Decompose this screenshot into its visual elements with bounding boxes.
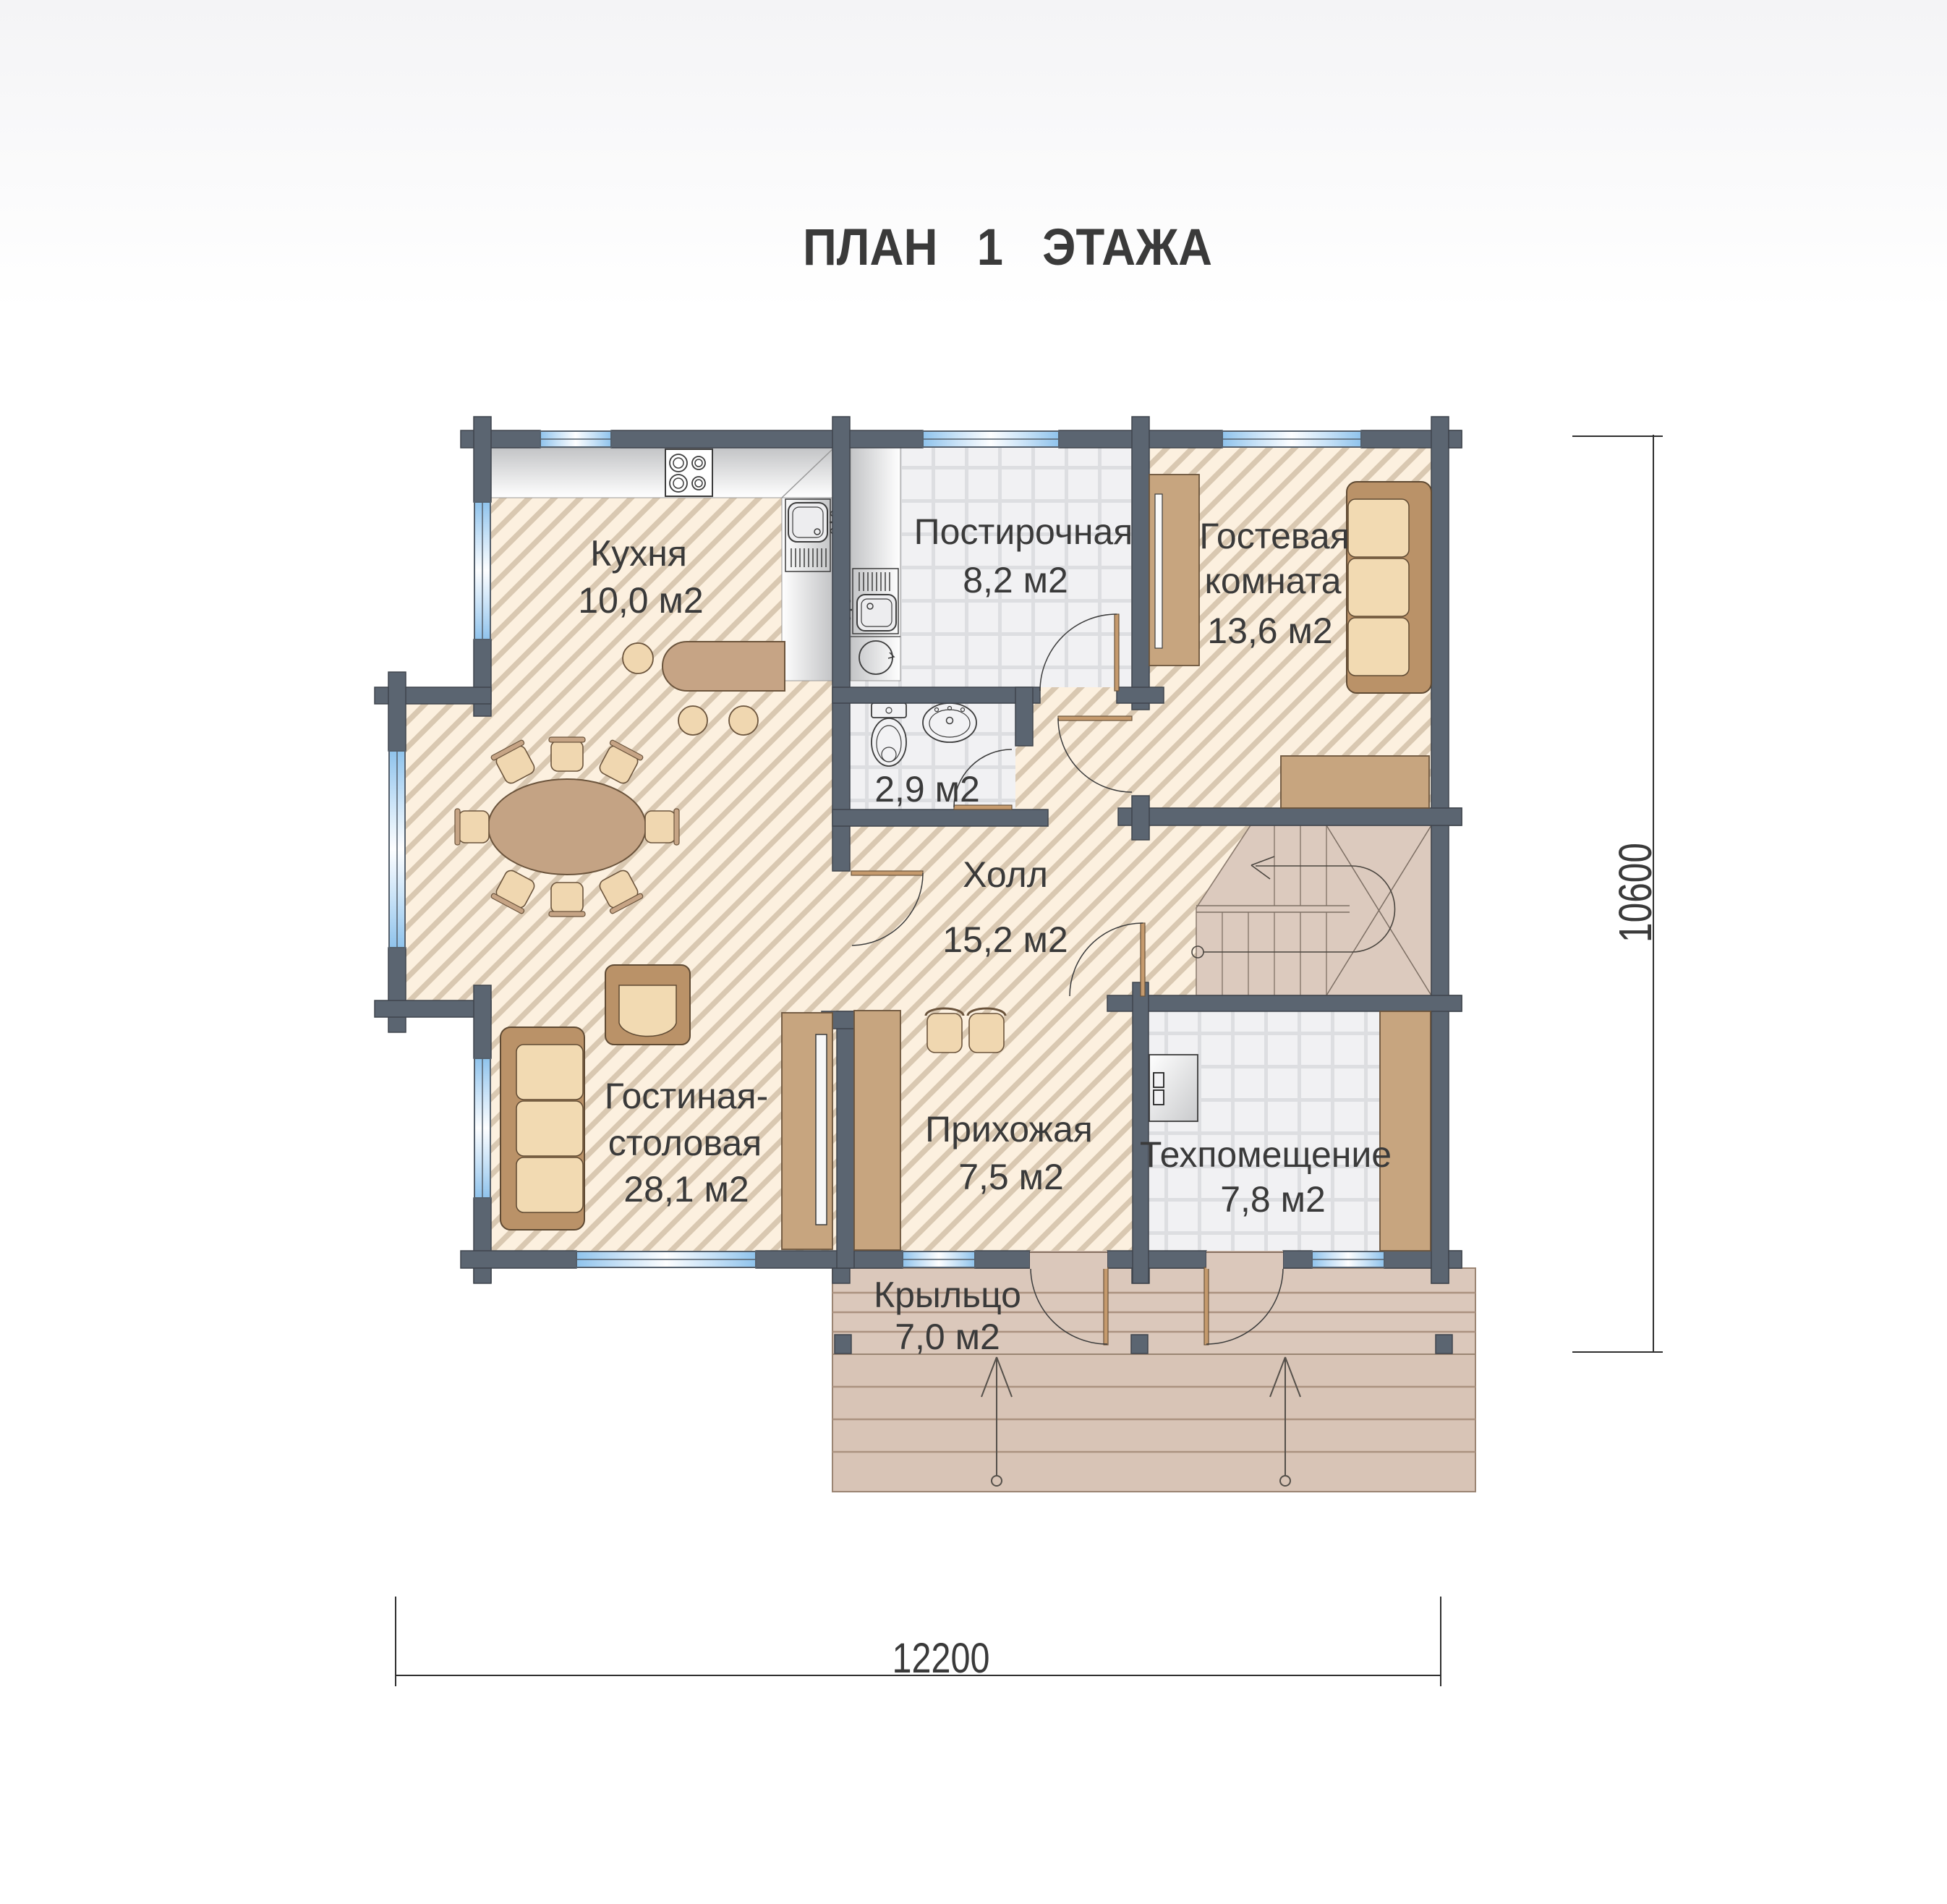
svg-text:10600: 10600 xyxy=(1609,843,1661,943)
svg-text:7,5 м2: 7,5 м2 xyxy=(958,1157,1064,1197)
svg-text:столовая: столовая xyxy=(608,1123,762,1163)
svg-text:Холл: Холл xyxy=(963,854,1048,895)
svg-text:7,8 м2: 7,8 м2 xyxy=(1220,1179,1326,1220)
svg-text:28,1 м2: 28,1 м2 xyxy=(623,1169,749,1210)
svg-text:Техпомещение: Техпомещение xyxy=(1140,1134,1392,1175)
svg-text:10,0 м2: 10,0 м2 xyxy=(578,580,703,621)
svg-text:13,6 м2: 13,6 м2 xyxy=(1207,611,1332,651)
svg-text:15,2 м2: 15,2 м2 xyxy=(942,919,1068,960)
svg-text:2,9 м2: 2,9 м2 xyxy=(874,769,980,809)
svg-text:комната: комната xyxy=(1204,561,1341,601)
svg-text:Гостевая: Гостевая xyxy=(1199,516,1350,556)
svg-text:Кухня: Кухня xyxy=(590,533,687,574)
svg-text:Крыльцо: Крыльцо xyxy=(874,1275,1021,1315)
svg-text:Гостиная-: Гостиная- xyxy=(605,1076,769,1116)
svg-text:12200: 12200 xyxy=(892,1635,990,1682)
svg-text:ПЛАН 1 ЭТАЖА: ПЛАН 1 ЭТАЖА xyxy=(803,219,1212,276)
svg-text:7,0 м2: 7,0 м2 xyxy=(895,1317,1000,1357)
svg-text:Прихожая: Прихожая xyxy=(925,1109,1093,1149)
svg-text:Постирочная: Постирочная xyxy=(914,511,1133,552)
svg-text:8,2 м2: 8,2 м2 xyxy=(963,560,1068,600)
